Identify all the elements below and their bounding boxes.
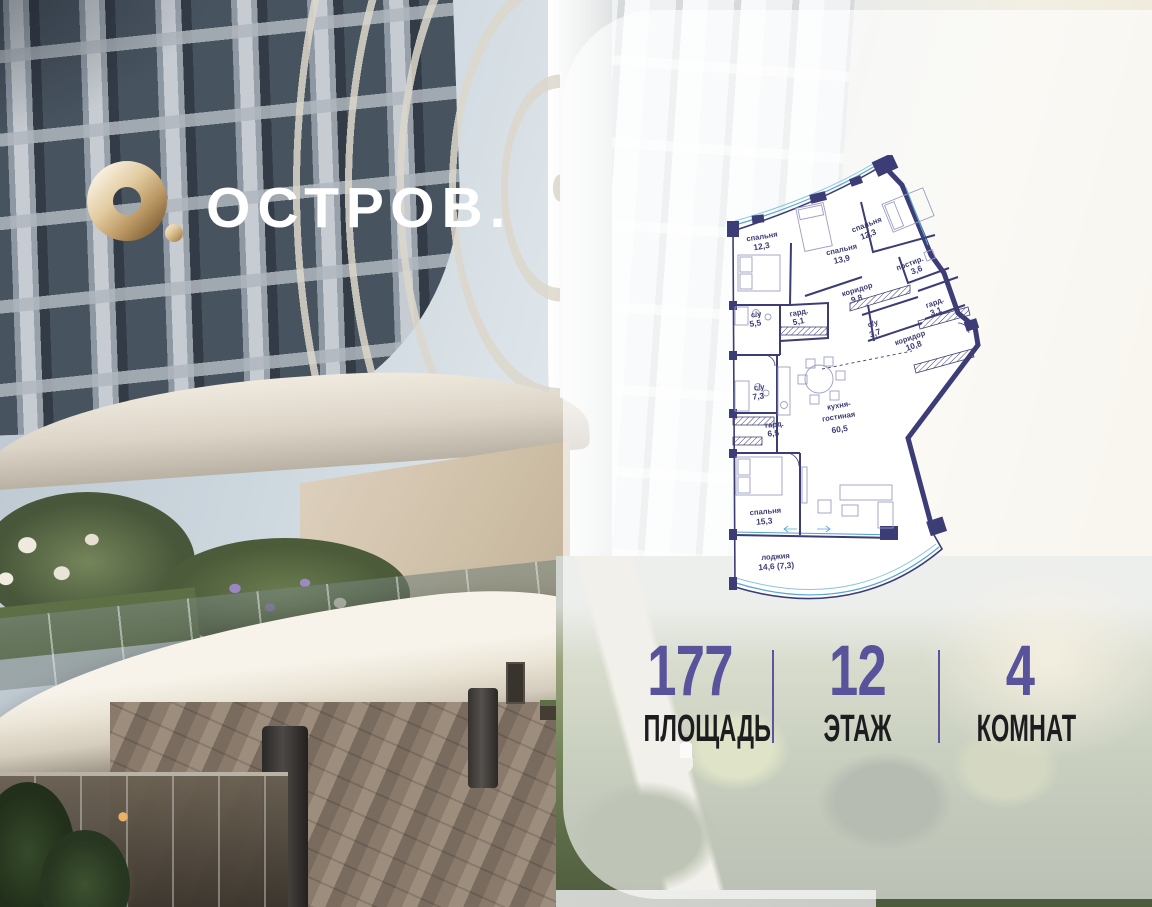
stat-area-value: 177	[635, 644, 746, 700]
menu-board	[506, 662, 525, 704]
stat-floor-value: 12	[804, 644, 911, 700]
stat-floor: 12 ЭТАЖ	[785, 644, 930, 746]
stat-rooms-value: 4	[968, 644, 1072, 700]
promo-page: ОСТРОВ.	[0, 0, 1152, 907]
svg-text:7,3: 7,3	[752, 390, 765, 401]
brand-logo: ОСТРОВ.	[86, 158, 506, 253]
stats-divider	[938, 650, 940, 743]
stats-divider	[772, 650, 774, 743]
stat-rooms-label: КОМНАТ	[977, 712, 1064, 746]
svg-text:6,5: 6,5	[767, 427, 780, 438]
svg-text:5,5: 5,5	[749, 317, 762, 329]
stat-floor-label: ЭТАЖ	[813, 712, 903, 746]
stat-area: 177 ПЛОЩАДЬ	[615, 644, 765, 746]
stat-rooms: 4 КОМНАТ	[950, 644, 1090, 746]
stat-area-label: ПЛОЩАДЬ	[644, 712, 737, 746]
logo-wordmark: ОСТРОВ.	[206, 180, 513, 237]
floorplan: спальня12,3 спальня13,9 спальня12,3 пост…	[722, 155, 982, 620]
logo-o-torus-icon	[86, 158, 190, 253]
pillar-small	[468, 688, 498, 788]
svg-text:15,3: 15,3	[756, 515, 773, 526]
